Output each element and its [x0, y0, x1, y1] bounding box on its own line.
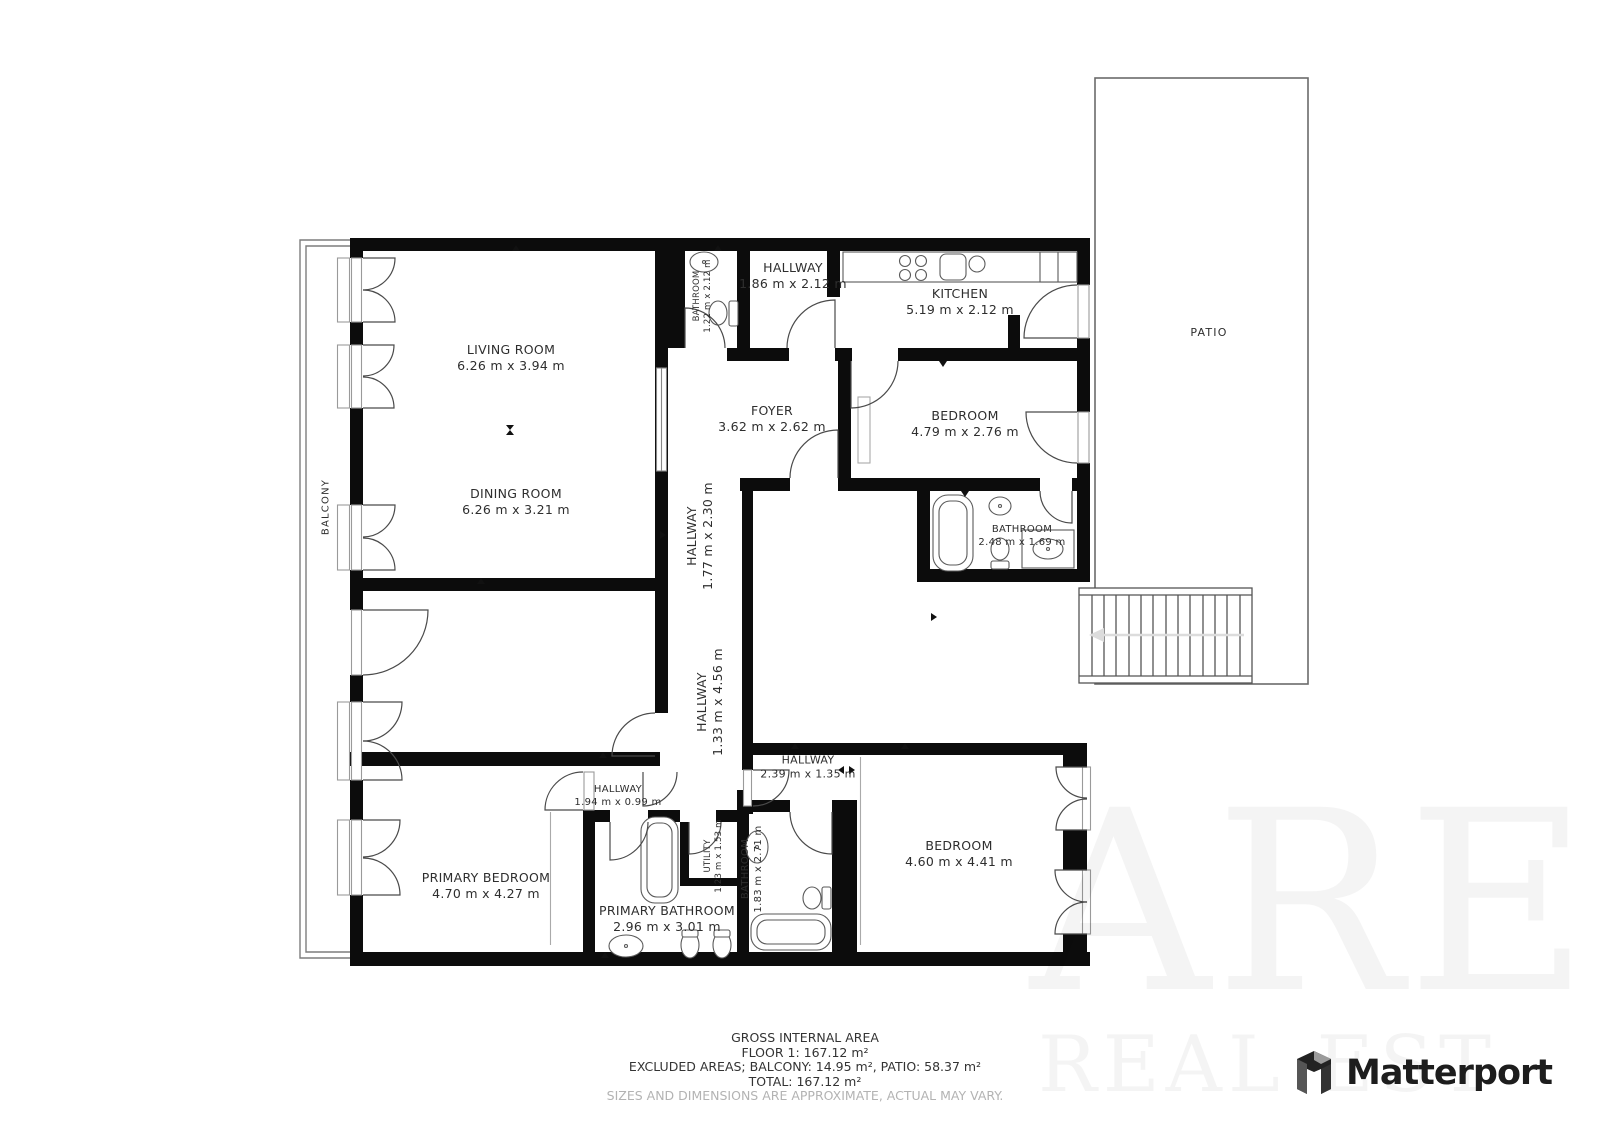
door-swing-icon	[1024, 285, 1077, 338]
excluded-areas-line: EXCLUDED AREAS; BALCONY: 14.95 m², PATIO…	[405, 1060, 1205, 1075]
room-label-kitchen: KITCHEN5.19 m x 2.12 m	[906, 286, 1014, 319]
disclaimer-line: SIZES AND DIMENSIONS ARE APPROXIMATE, AC…	[405, 1089, 1205, 1104]
room-label-hallway-lower: HALLWAY2.39 m x 1.35 m	[760, 754, 855, 783]
door-swing-icon	[363, 505, 395, 537]
door-swing-icon	[1026, 412, 1077, 463]
floor-area-line: FLOOR 1: 167.12 m²	[405, 1046, 1205, 1061]
room-label-hallway-top: HALLWAY1.86 m x 2.12 m	[739, 260, 847, 293]
area-label-patio: PATIO	[1190, 326, 1227, 340]
area-summary: GROSS INTERNAL AREA FLOOR 1: 167.12 m² E…	[405, 1031, 1205, 1104]
room-label-bedroom-top: BEDROOM4.79 m x 2.76 m	[911, 408, 1019, 441]
room-label-dining-room: DINING ROOM6.26 m x 3.21 m	[462, 486, 570, 519]
door-swing-icon	[363, 538, 395, 570]
door-swing-icon	[363, 610, 428, 675]
door-swing-icon	[787, 300, 835, 348]
matterport-m-icon	[1291, 1048, 1337, 1098]
matterport-logo: Matterport	[1291, 1048, 1552, 1098]
door-swing-icon	[363, 858, 400, 895]
gross-internal-area-title: GROSS INTERNAL AREA	[405, 1031, 1205, 1046]
room-label-hallway-small: HALLWAY1.94 m x 0.99 m	[574, 783, 661, 809]
door-swing-icon	[363, 345, 394, 376]
door-swing-icon	[363, 702, 402, 741]
room-label-utility: UTILITY1.23 m x 1.53 m	[703, 819, 725, 892]
glazed-partition	[657, 368, 667, 471]
room-label-foyer: FOYER3.62 m x 2.62 m	[718, 403, 826, 436]
background-watermark: ARE	[1030, 778, 1593, 1028]
door-swing-icon	[1040, 491, 1072, 523]
door-swing-icon	[363, 377, 394, 408]
total-area-line: TOTAL: 167.12 m²	[405, 1075, 1205, 1090]
door-swing-icon	[612, 713, 655, 756]
room-label-primary-bedroom: PRIMARY BEDROOM4.70 m x 4.27 m	[422, 870, 551, 903]
door-swing-icon	[363, 290, 395, 322]
room-label-bathroom-small: BATHROOM1.22 m x 2.12 m	[692, 259, 714, 332]
door-swing-icon	[790, 430, 838, 478]
room-label-living-room: LIVING ROOM6.26 m x 3.94 m	[457, 342, 565, 375]
room-label-bathroom-ensuite: BATHROOM2.48 m x 1.69 m	[978, 523, 1065, 549]
matterport-wordmark: Matterport	[1346, 1053, 1552, 1093]
room-label-hallway-main: HALLWAY1.33 m x 4.56 m	[694, 648, 727, 756]
door-swing-icon	[363, 820, 400, 857]
room-label-primary-bathroom: PRIMARY BATHROOM2.96 m x 3.01 m	[599, 903, 735, 936]
floor-plan-canvas: ARE REAL EST	[0, 0, 1600, 1131]
room-label-bedroom-lower: BEDROOM4.60 m x 4.41 m	[905, 838, 1013, 871]
kitchen-counter-icon	[843, 252, 1077, 282]
door-swing-icon	[790, 812, 832, 854]
area-label-balcony: BALCONY	[320, 479, 333, 535]
door-swing-icon	[363, 258, 395, 290]
room-label-bathroom-lower: BATHROOM1.83 m x 2.71 m	[739, 825, 765, 912]
room-label-hallway-upper: HALLWAY1.77 m x 2.30 m	[684, 482, 717, 590]
